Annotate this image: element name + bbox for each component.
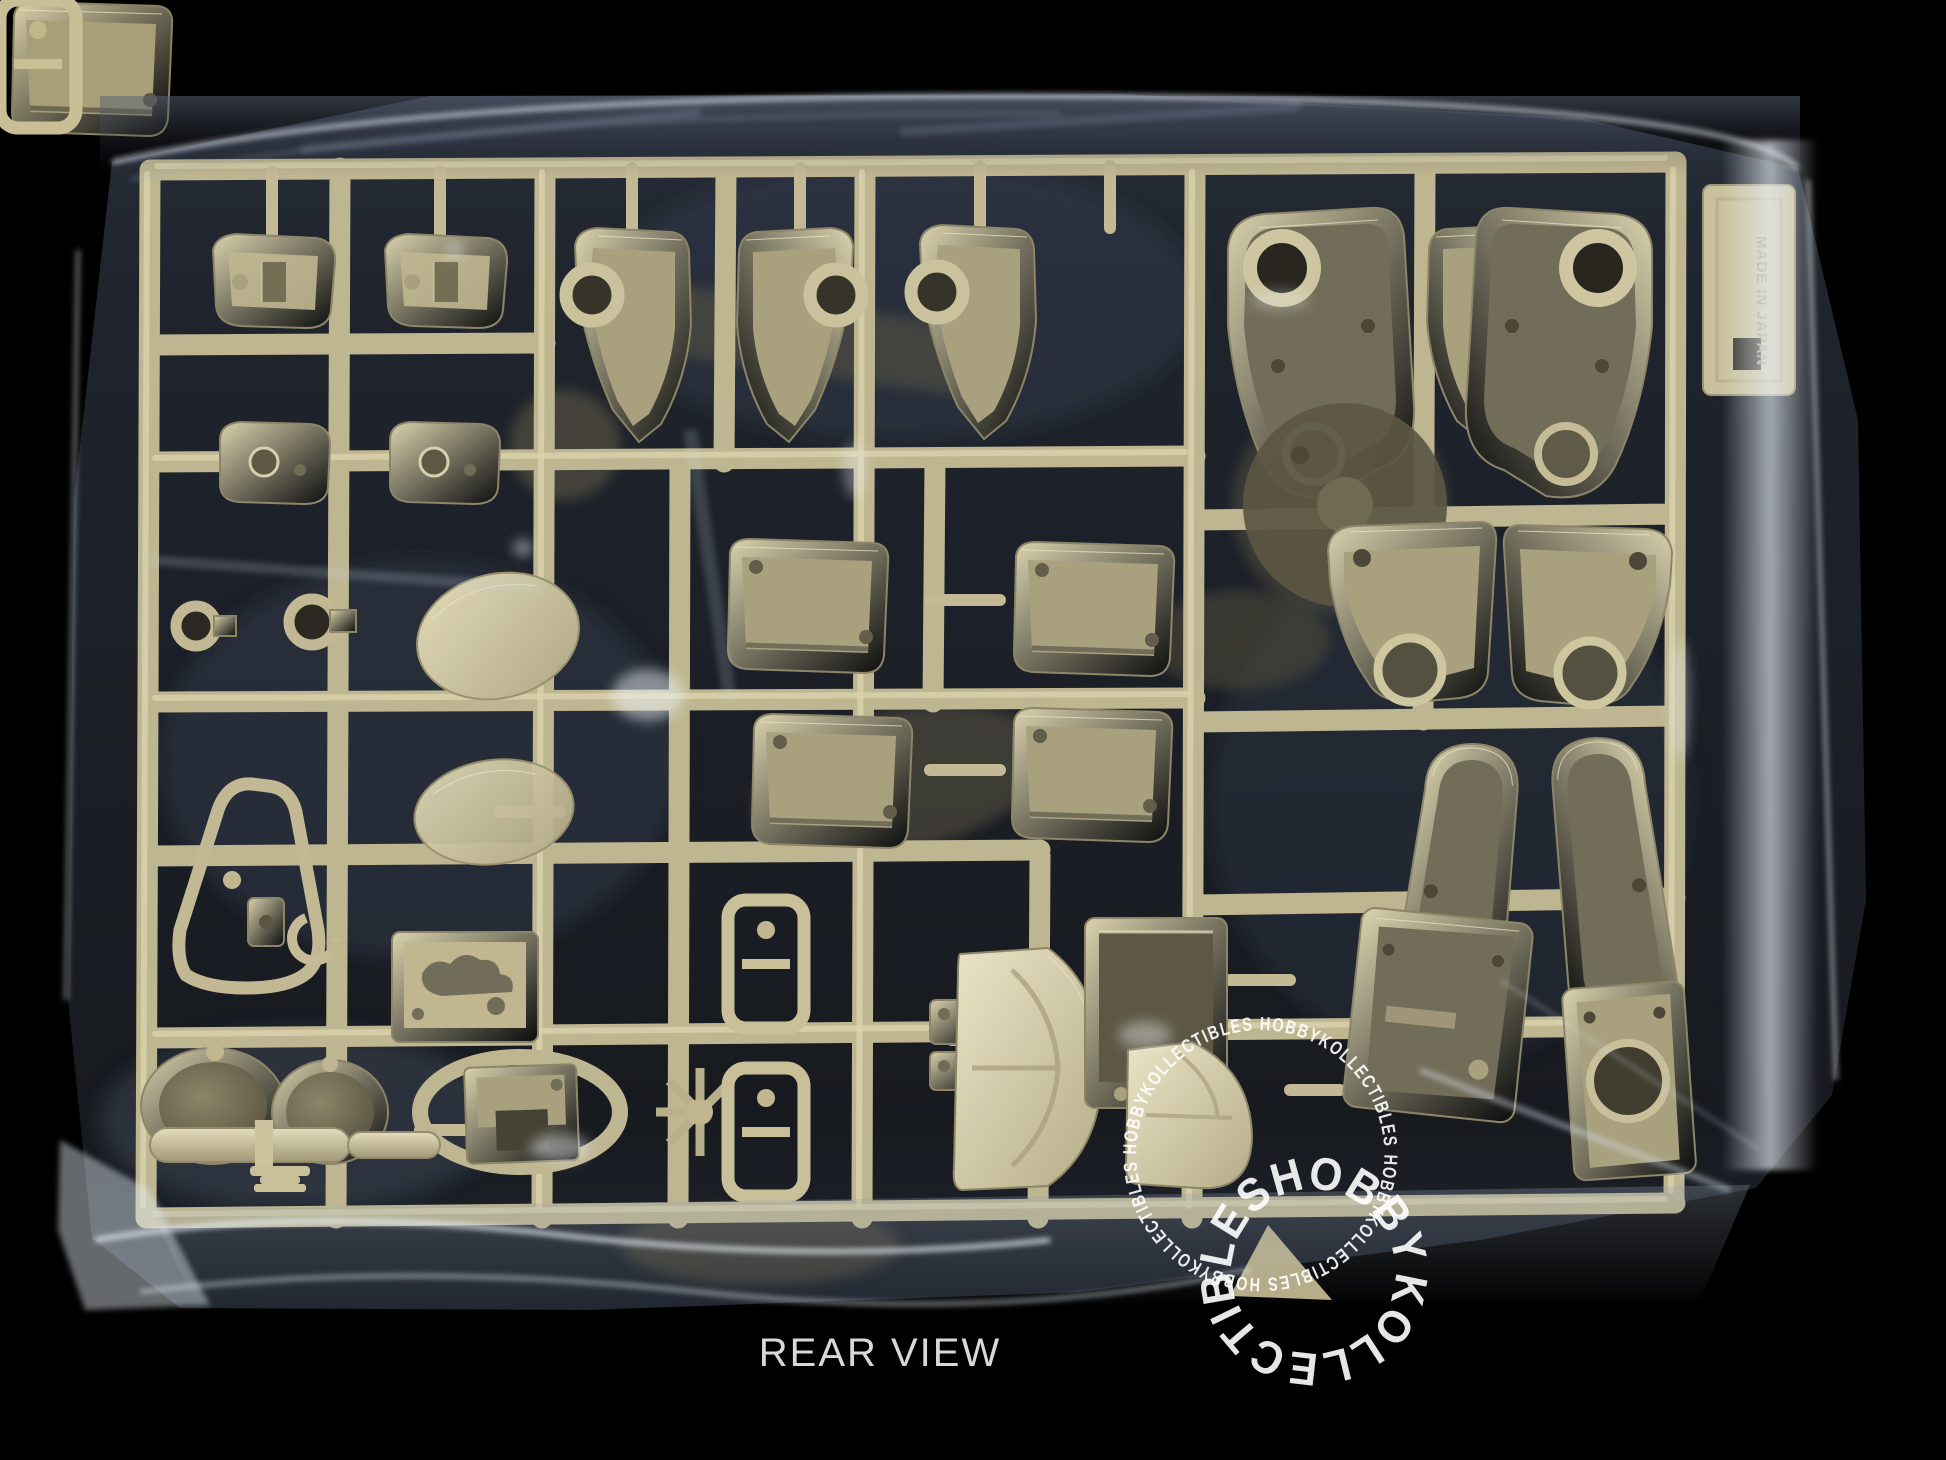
caption-rear-view: REAR VIEW <box>759 1331 1001 1375</box>
bag-veil <box>68 94 1866 1310</box>
bag-right-fold <box>1722 140 1818 1170</box>
sprue-photo: MADE IN JAPAN <box>0 0 1946 1460</box>
photo-canvas: MADE IN JAPAN <box>0 0 1946 1460</box>
plastic-bag-front <box>58 94 1866 1312</box>
bag-top-band <box>100 96 1800 176</box>
